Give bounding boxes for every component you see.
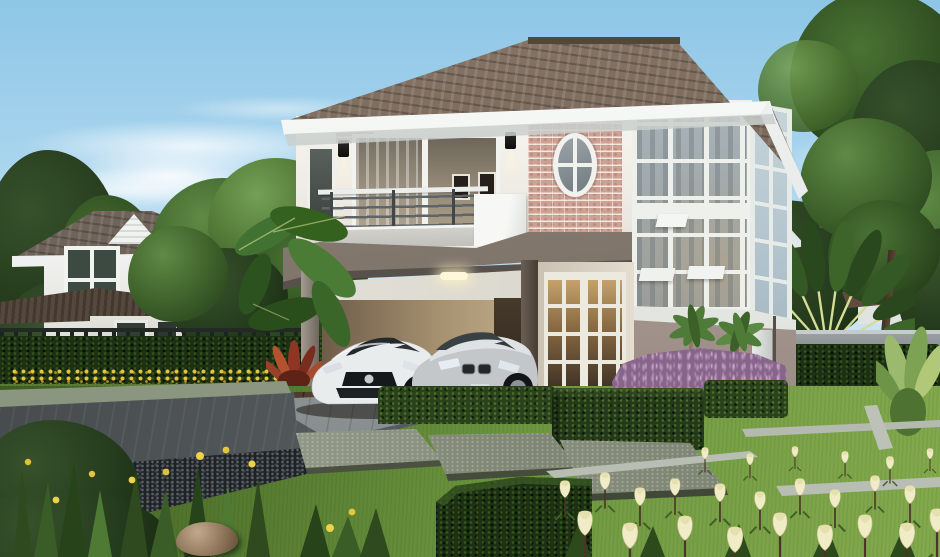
boulder bbox=[176, 522, 238, 556]
rendering-scene bbox=[0, 0, 940, 557]
open-casement-pane bbox=[687, 266, 725, 279]
oval-window-muntin bbox=[558, 163, 592, 167]
front-hedge bbox=[704, 380, 788, 418]
tulips-far bbox=[698, 446, 936, 486]
oval-window bbox=[553, 133, 597, 197]
tulip-field bbox=[545, 438, 940, 557]
open-casement-pane bbox=[655, 214, 688, 227]
french-door-center-stile bbox=[582, 276, 588, 388]
tulips-near bbox=[571, 509, 940, 557]
carport-ceiling-light bbox=[440, 272, 468, 280]
open-casement-pane bbox=[639, 268, 676, 281]
front-hedge bbox=[378, 386, 556, 424]
